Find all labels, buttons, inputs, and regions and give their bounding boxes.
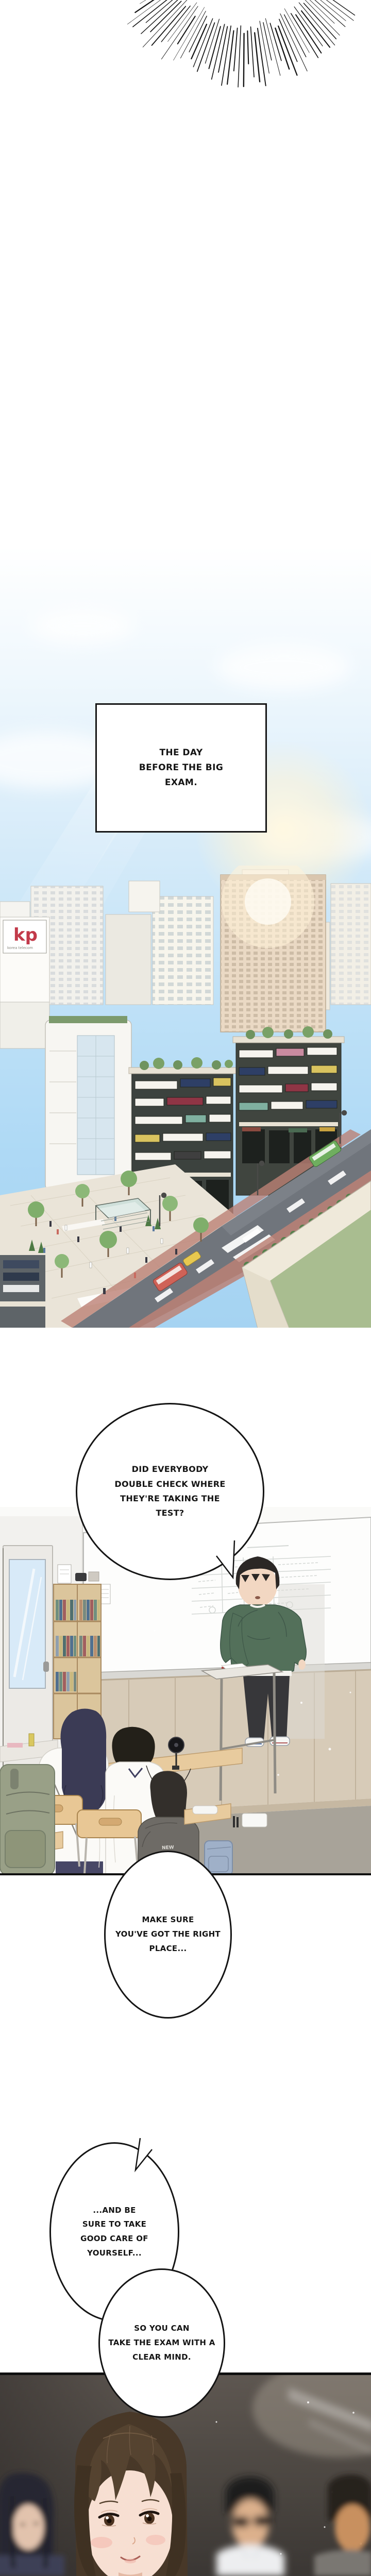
apartment-tower — [221, 866, 326, 1032]
glass-building — [45, 1016, 131, 1190]
hoodie-girl-hair — [150, 1771, 187, 1823]
burst-lines — [127, 0, 355, 87]
speech-bubble-tail — [209, 1533, 245, 1584]
hoodie-text: NEW — [162, 1845, 174, 1851]
left-dark-building — [0, 1255, 45, 1328]
pencil-case — [193, 1806, 217, 1814]
kp-sign-subtext: korea telecom — [7, 946, 33, 950]
speech-bubble-right-place: MAKE SURE YOU'VE GOT THE RIGHT PLACE... — [104, 1851, 232, 2019]
webtoon-page: THE DAY BEFORE THE BIG EXAM. — [0, 0, 371, 2576]
speech-bubble-clear-mind: SO YOU CAN TAKE THE EXAM WITH A CLEAR MI… — [98, 2268, 225, 2418]
city-illustration: kp korea telecom — [0, 866, 371, 1328]
cloud — [31, 608, 134, 644]
sky-city-panel: THE DAY BEFORE THE BIG EXAM. — [0, 546, 371, 1328]
teacher-mouth — [255, 1596, 260, 1599]
kp-building: kp korea telecom — [0, 917, 49, 1048]
kp-sign-text: kp — [13, 925, 38, 945]
classroom-door — [3, 1546, 53, 1775]
caption-box: THE DAY BEFORE THE BIG EXAM. — [95, 703, 267, 833]
speed-burst-effect — [0, 0, 371, 126]
green-backpack — [0, 1765, 55, 1875]
girl-figure — [74, 2412, 188, 2576]
boy-hair — [112, 1727, 155, 1766]
cloud — [216, 644, 350, 690]
speech-bubble-notch — [124, 2128, 160, 2177]
